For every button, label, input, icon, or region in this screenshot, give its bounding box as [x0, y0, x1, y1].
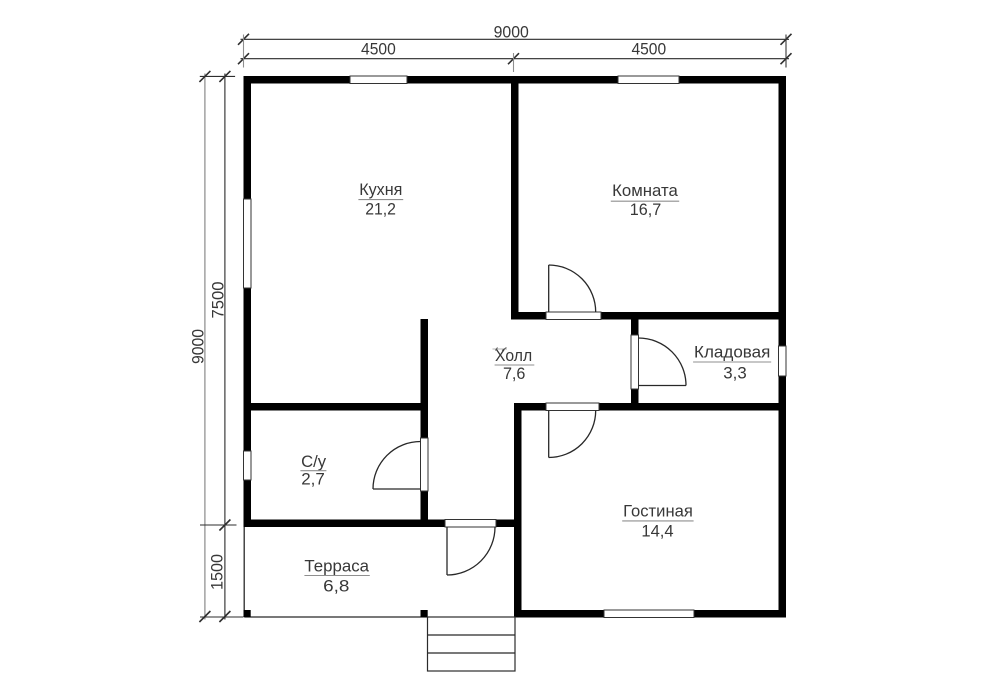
svg-text:16,7: 16,7	[630, 200, 662, 219]
svg-text:7500: 7500	[209, 282, 227, 319]
svg-text:14,4: 14,4	[641, 522, 673, 541]
svg-text:4500: 4500	[631, 41, 666, 59]
svg-text:Кладовая: Кладовая	[694, 343, 770, 362]
svg-text:4500: 4500	[361, 41, 396, 59]
svg-text:Холл: Холл	[495, 346, 532, 365]
svg-text:Гостиная: Гостиная	[623, 502, 693, 521]
svg-text:9000: 9000	[190, 329, 208, 364]
svg-text:9000: 9000	[494, 24, 529, 42]
svg-text:2,7: 2,7	[301, 470, 325, 489]
svg-text:3,3: 3,3	[723, 364, 746, 383]
svg-text:С/у: С/у	[301, 452, 326, 471]
svg-text:Терраса: Терраса	[304, 557, 369, 576]
svg-text:6,8: 6,8	[323, 577, 349, 596]
svg-text:Комната: Комната	[612, 181, 678, 200]
svg-text:7,6: 7,6	[503, 364, 526, 383]
svg-text:1500: 1500	[209, 554, 227, 590]
svg-text:21,2: 21,2	[365, 200, 396, 219]
svg-text:Кухня: Кухня	[359, 180, 402, 199]
